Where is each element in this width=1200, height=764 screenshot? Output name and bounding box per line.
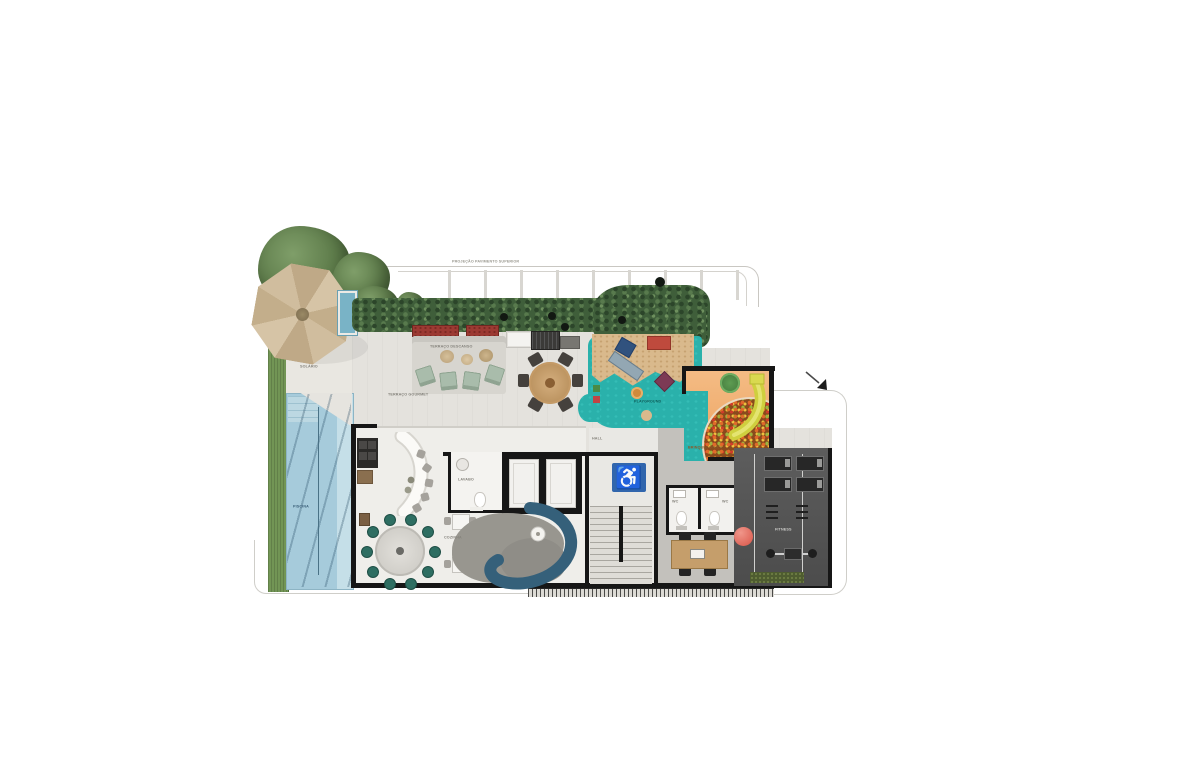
curved-sofa	[452, 498, 592, 593]
label-kitchen: COZINHA	[444, 536, 462, 540]
restroom-toilet	[709, 511, 720, 526]
pergola-slat	[556, 270, 559, 300]
curved-bar-counter	[384, 432, 444, 516]
gym-guide-line	[754, 454, 755, 580]
hedge-tree-dot	[561, 323, 569, 331]
grill-bench	[560, 336, 580, 349]
lounge-armchair	[462, 371, 481, 391]
hedge-tree-dot	[548, 312, 556, 320]
dining-chair	[518, 374, 529, 387]
label-projection: PROJEÇÃO PAVIMENTO SUPERIOR	[452, 260, 519, 264]
label-wc-right: WC	[722, 500, 728, 504]
floor-plan-page: ♿	[0, 0, 1200, 764]
kids-room-wall-top	[682, 366, 775, 371]
round-table-chair	[429, 546, 441, 558]
exercise-ball	[734, 527, 753, 546]
table-centerpiece	[545, 378, 555, 388]
play-toy	[593, 385, 600, 392]
pergola-slat	[484, 270, 487, 300]
label-rest-terrace: TERRAÇO DESCANSO	[430, 345, 472, 349]
cafe-chair	[444, 560, 451, 568]
lavatory-sink	[456, 458, 469, 471]
round-table-chair	[367, 566, 379, 578]
treadmill	[764, 456, 792, 471]
restroom-divider	[698, 485, 701, 529]
barbell-plate	[766, 549, 775, 558]
kitchen-counter-item	[357, 470, 373, 484]
round-table-chair	[361, 546, 373, 558]
label-lavatory: LAVABO	[458, 478, 474, 482]
round-table-chair	[384, 514, 396, 526]
dumbbell-rack	[796, 505, 808, 519]
round-table-chair	[405, 578, 417, 590]
label-wc-left: WC	[672, 500, 678, 504]
pouf	[479, 349, 493, 362]
label-kids-room: BRINQUEDOTECA	[688, 446, 722, 450]
pergola-slat	[448, 270, 451, 300]
parasol-pole	[296, 308, 309, 321]
round-table-chair	[384, 578, 396, 590]
hedge-tree-dot	[618, 316, 626, 324]
label-solarium: SOLÁRIO	[300, 365, 318, 369]
stair-divider-wall	[619, 506, 623, 562]
dumbbell-rack	[766, 505, 778, 519]
barbell-plate	[808, 549, 817, 558]
pergola-slat	[736, 270, 739, 300]
kids-round-rug	[720, 373, 740, 393]
wheelchair-icon: ♿	[615, 467, 642, 489]
pergola-slat	[520, 270, 523, 300]
pool-shadow-lines	[287, 394, 351, 587]
label-pool: PISCINA	[293, 505, 309, 509]
dining-chair	[572, 374, 583, 387]
lounge-armchair	[439, 371, 458, 391]
restroom-door-gap	[676, 526, 687, 530]
pool-lane-line	[318, 407, 319, 575]
play-house	[647, 336, 671, 350]
pouf	[461, 354, 473, 365]
wall-interior-left	[351, 424, 356, 588]
label-playground: PLAYGROUND	[634, 400, 661, 404]
wall-hall-right	[654, 452, 658, 588]
treadmill	[796, 456, 824, 471]
coworking-table-items	[690, 549, 705, 559]
round-table-chair	[367, 526, 379, 538]
barbecue-grill	[531, 331, 560, 350]
grill-cabinet	[506, 331, 532, 348]
label-gourmet-terrace: TERRAÇO GOURMET	[388, 393, 428, 397]
bar-stool	[424, 478, 433, 487]
wall-gym-right	[828, 448, 832, 588]
label-hall: HALL	[592, 437, 602, 441]
pergola-slat	[592, 270, 595, 300]
play-sand-circle	[641, 410, 652, 421]
kitchen-appliance	[359, 441, 367, 449]
restroom-sink	[673, 490, 686, 498]
round-table-chair	[422, 566, 434, 578]
kids-room-wall-right	[769, 366, 774, 461]
restroom-toilet	[676, 511, 687, 526]
round-table-chair	[422, 526, 434, 538]
restroom-sink	[706, 490, 719, 498]
deck-threshold-line	[375, 426, 586, 428]
kids-room-wall-left-stub	[682, 366, 686, 394]
weight-bench	[784, 548, 802, 560]
kitchen-counter-item	[359, 513, 370, 526]
treadmill	[796, 477, 824, 492]
wall-interior-top-stub	[351, 424, 377, 428]
indoor-table-centerpiece	[396, 547, 404, 555]
gym-turf	[750, 572, 804, 583]
label-fitness: FITNESS	[775, 528, 792, 532]
pouf	[440, 350, 454, 363]
play-toy	[593, 396, 600, 403]
treadmill	[764, 477, 792, 492]
hedge-tree-dot	[500, 313, 508, 321]
north-arrow-icon	[800, 364, 834, 398]
restroom-door-gap	[708, 526, 719, 530]
accessibility-sign: ♿	[612, 463, 646, 492]
cafe-chair	[444, 517, 451, 525]
round-table-chair	[405, 514, 417, 526]
play-carousel	[631, 387, 643, 399]
hedge-tree-dot	[655, 277, 665, 287]
